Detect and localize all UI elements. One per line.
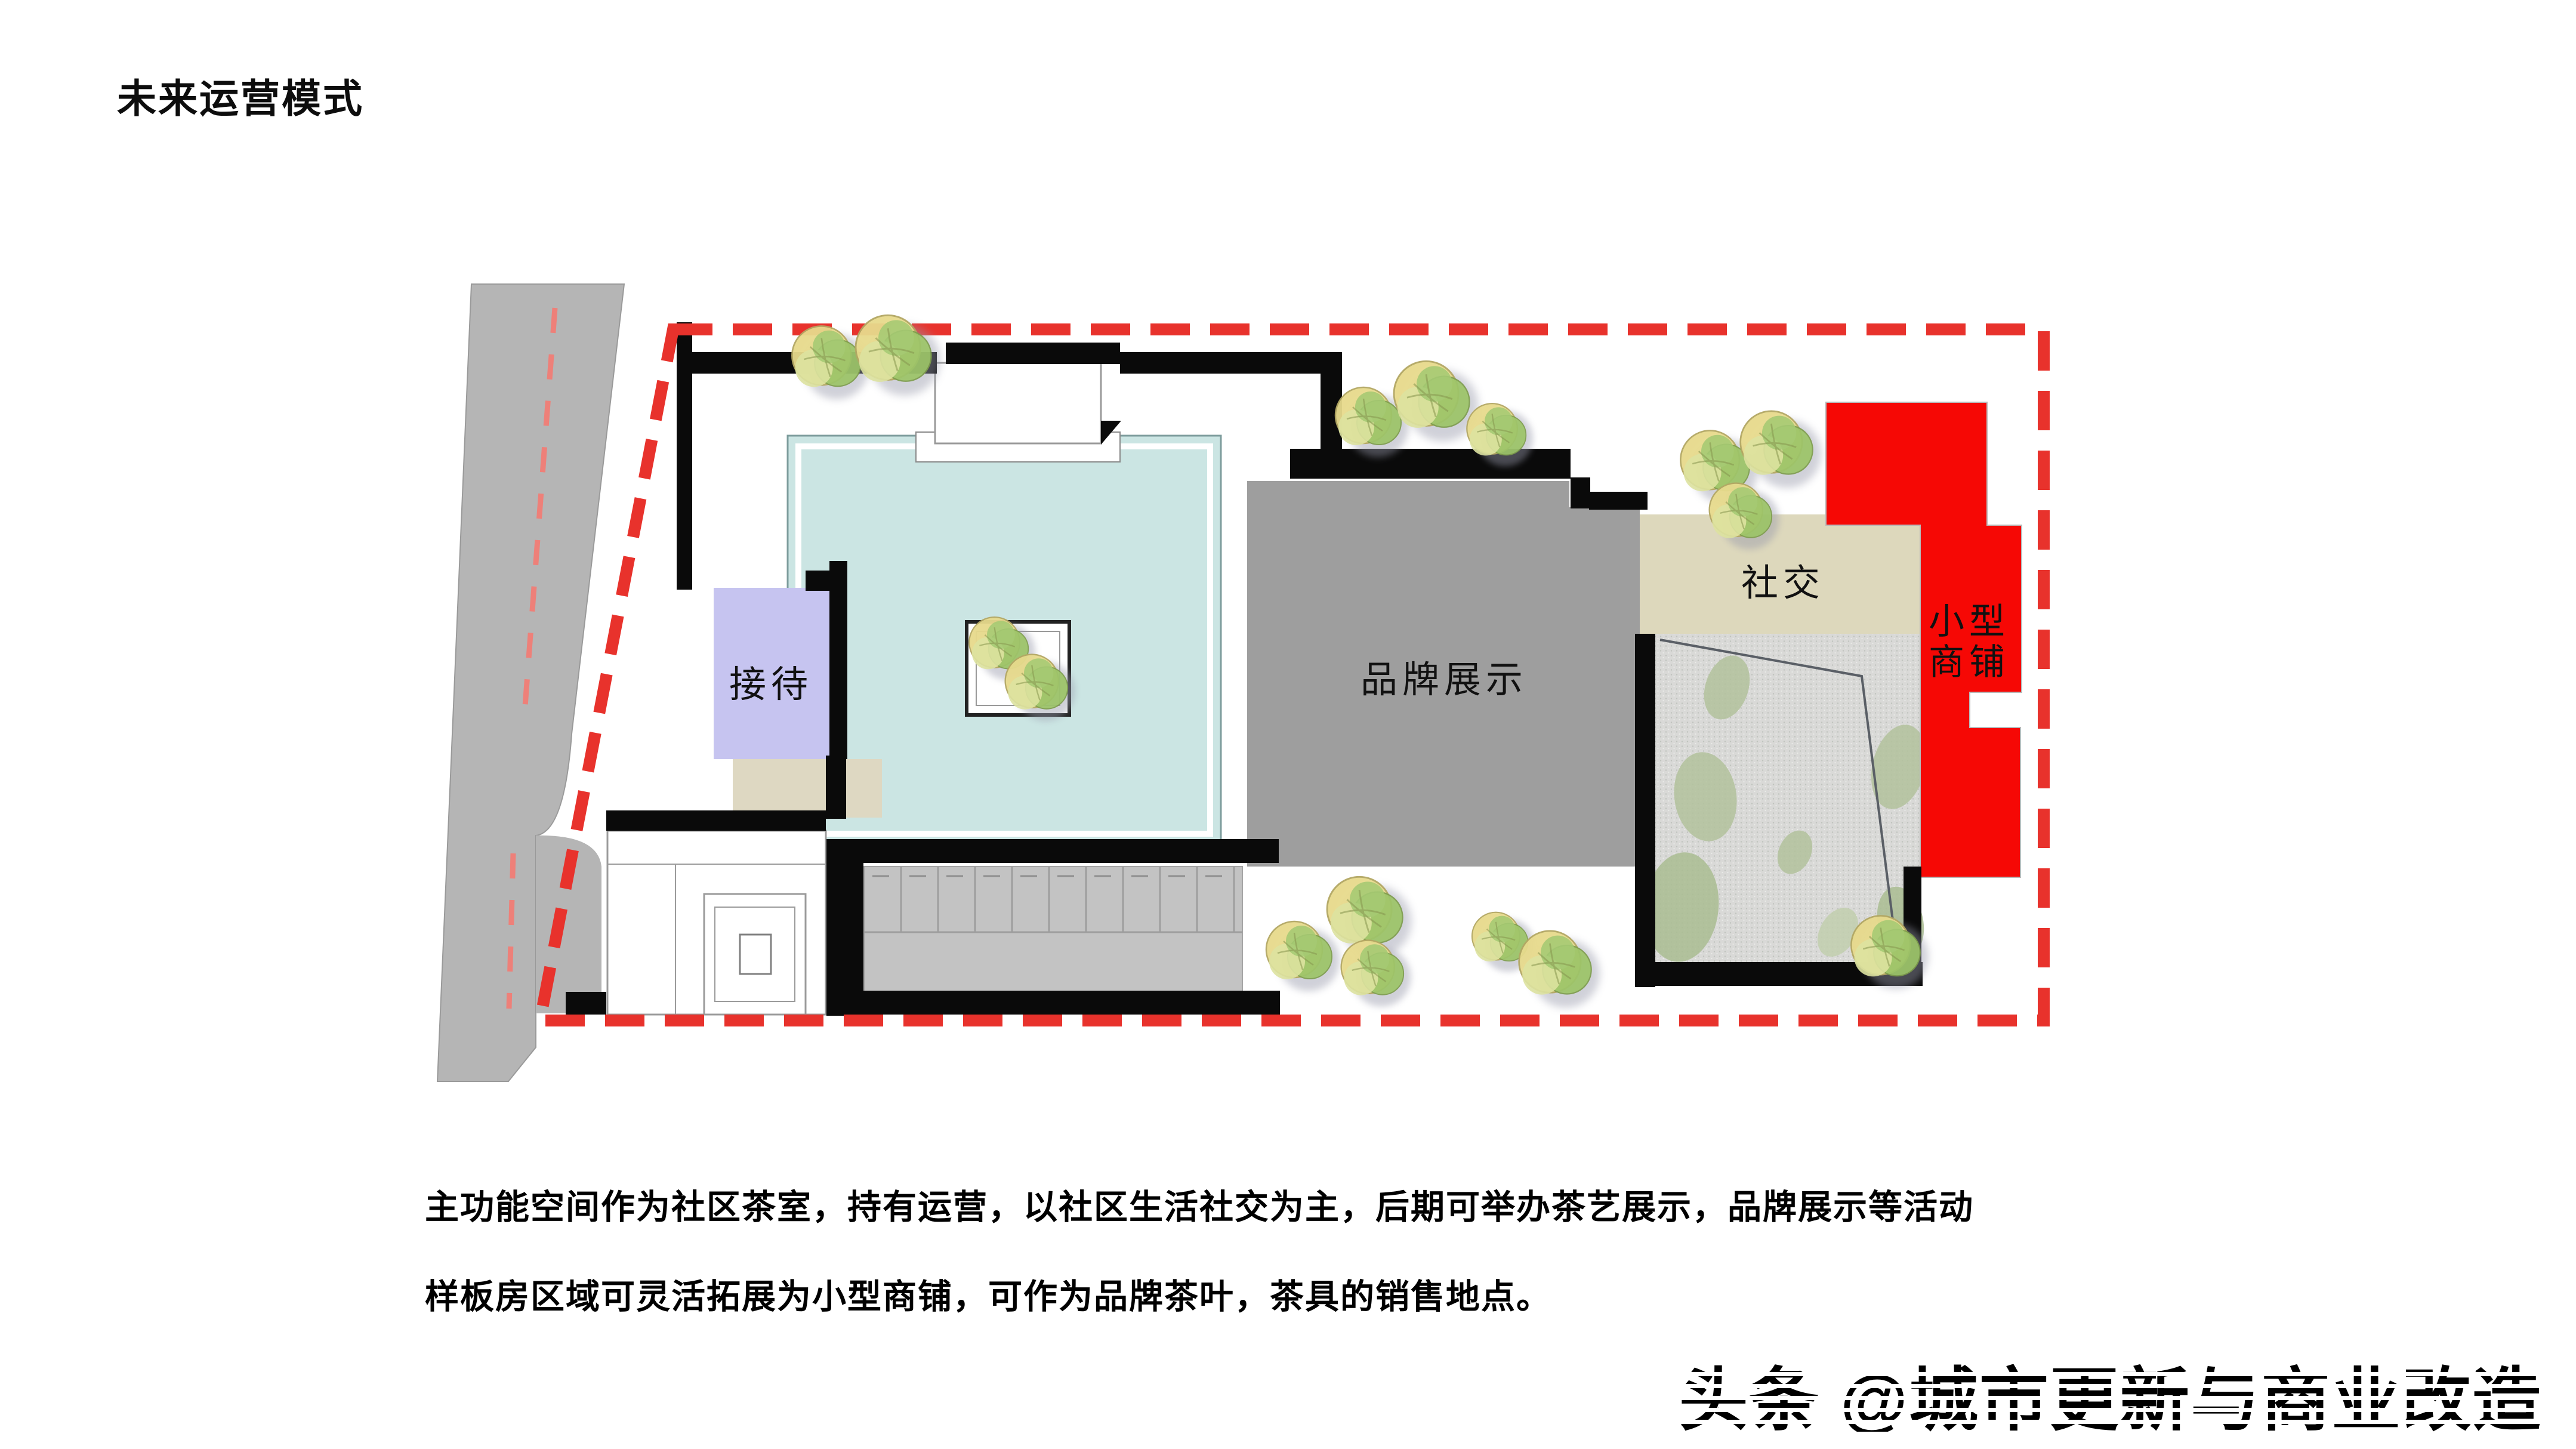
- label-brand-display: 品牌展示: [1361, 660, 1528, 701]
- description-line-1: 主功能空间作为社区茶室，持有运营，以社区生活社交为主，后期可举办茶艺展示，品牌展…: [425, 1163, 2203, 1252]
- label-reception: 接待: [729, 665, 813, 705]
- reception-annex-area: [733, 759, 882, 818]
- description-block: 主功能空间作为社区茶室，持有运营，以社区生活社交为主，后期可举办茶艺展示，品牌展…: [425, 1163, 2203, 1342]
- label-social: 社交: [1741, 563, 1825, 604]
- entry-porch: [607, 831, 826, 1015]
- tree-icon: [1519, 931, 1600, 1008]
- skylight-center: [740, 935, 771, 974]
- tree-icon: [1266, 921, 1340, 991]
- vestibule-box: [935, 363, 1101, 443]
- deck-terrace: [864, 867, 1242, 992]
- description-line-2: 样板房区域可灵活拓展为小型商铺，可作为品牌茶叶，茶具的销售地点。: [425, 1252, 2203, 1342]
- label-small-shop-line2: 商铺: [1929, 643, 2010, 682]
- label-small-shop-line1: 小型: [1929, 602, 2010, 642]
- watermark-text: 头条 @城市更新与商业改造: [1679, 1344, 2543, 1444]
- tree-icon: [1341, 941, 1411, 1007]
